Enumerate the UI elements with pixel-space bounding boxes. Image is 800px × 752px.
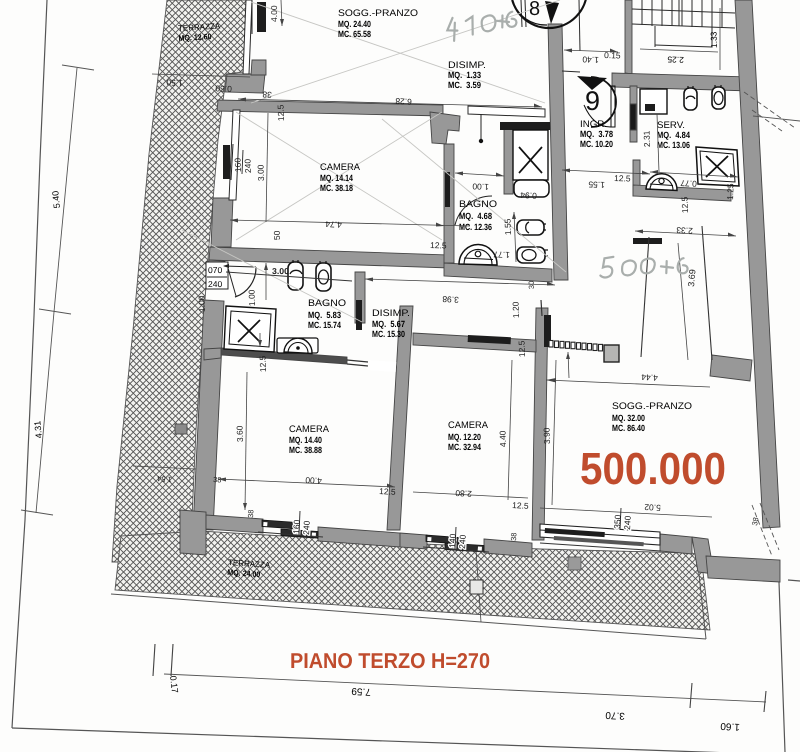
svg-text:0.15: 0.15 bbox=[604, 50, 621, 61]
svg-text:1.55: 1.55 bbox=[588, 179, 605, 190]
svg-text:SOGG.-PRANZO: SOGG.-PRANZO bbox=[612, 401, 692, 412]
svg-text:MC. 38.88: MC. 38.88 bbox=[289, 445, 322, 455]
svg-text:MC. 10.20: MC. 10.20 bbox=[580, 139, 613, 149]
svg-text:MQ. 4.68: MQ. 4.68 bbox=[459, 211, 492, 221]
svg-text:4.00: 4.00 bbox=[305, 475, 322, 486]
svg-text:MC. 86.40: MC. 86.40 bbox=[612, 423, 645, 433]
svg-text:30: 30 bbox=[527, 281, 536, 290]
svg-text:1.20: 1.20 bbox=[510, 301, 521, 318]
svg-text:3.60: 3.60 bbox=[234, 425, 245, 442]
svg-text:1.33: 1.33 bbox=[708, 31, 719, 48]
svg-text:MQ. 14.14: MQ. 14.14 bbox=[320, 173, 353, 183]
svg-text:8: 8 bbox=[529, 0, 540, 20]
svg-text:MQ. 4.84: MQ. 4.84 bbox=[657, 130, 690, 140]
svg-text:500.000: 500.000 bbox=[580, 443, 726, 494]
svg-text:MC. 12.36: MC. 12.36 bbox=[459, 222, 492, 232]
svg-text:DISIMP.: DISIMP. bbox=[372, 308, 410, 319]
svg-text:12.5: 12.5 bbox=[379, 486, 396, 497]
svg-text:MQ. 12.20: MQ. 12.20 bbox=[448, 432, 481, 442]
svg-text:0.94: 0.94 bbox=[520, 190, 537, 201]
svg-text:3.90: 3.90 bbox=[541, 427, 552, 444]
svg-text:3.70: 3.70 bbox=[605, 709, 625, 721]
svg-text:4.00: 4.00 bbox=[269, 5, 279, 22]
svg-text:MQ. 12.60: MQ. 12.60 bbox=[178, 32, 212, 43]
svg-text:12.5: 12.5 bbox=[430, 240, 447, 251]
svg-text:CAMERA: CAMERA bbox=[289, 424, 330, 435]
svg-text:240: 240 bbox=[622, 515, 633, 530]
svg-text:240: 240 bbox=[243, 158, 253, 173]
svg-text:350: 350 bbox=[612, 514, 623, 529]
svg-text:240: 240 bbox=[457, 534, 468, 549]
svg-text:4.44: 4.44 bbox=[641, 372, 658, 383]
svg-text:38: 38 bbox=[213, 475, 222, 484]
svg-text:4.74: 4.74 bbox=[325, 219, 342, 230]
svg-text:2.31: 2.31 bbox=[641, 130, 652, 147]
svg-text:12.5: 12.5 bbox=[275, 104, 286, 121]
svg-text:CAMERA: CAMERA bbox=[448, 420, 489, 431]
svg-text:12.5: 12.5 bbox=[679, 196, 690, 213]
svg-text:0.50: 0.50 bbox=[215, 83, 232, 94]
svg-text:BAGNO: BAGNO bbox=[459, 199, 497, 210]
svg-text:9: 9 bbox=[585, 86, 600, 116]
svg-text:MC. 38.18: MC. 38.18 bbox=[320, 183, 353, 193]
svg-text:2.33: 2.33 bbox=[676, 225, 693, 236]
svg-text:38: 38 bbox=[509, 532, 518, 541]
svg-text:SOGG.-PRANZO: SOGG.-PRANZO bbox=[338, 8, 418, 19]
svg-text:MC. 32.94: MC. 32.94 bbox=[448, 442, 481, 452]
svg-text:1.60: 1.60 bbox=[720, 720, 740, 732]
svg-text:PIANO TERZO H=270: PIANO TERZO H=270 bbox=[290, 649, 490, 673]
svg-text:MQ. 14.40: MQ. 14.40 bbox=[289, 435, 322, 445]
svg-text:2.25: 2.25 bbox=[667, 54, 684, 65]
svg-text:3.00: 3.00 bbox=[255, 164, 266, 181]
svg-text:7.59: 7.59 bbox=[351, 685, 371, 697]
svg-text:4.40: 4.40 bbox=[497, 430, 508, 447]
svg-text:160: 160 bbox=[291, 519, 302, 534]
svg-text:MC. 15.74: MC. 15.74 bbox=[308, 320, 341, 330]
svg-text:MC. 13.06: MC. 13.06 bbox=[657, 140, 690, 150]
svg-text:4.31: 4.31 bbox=[32, 420, 44, 438]
svg-text:50: 50 bbox=[272, 230, 282, 240]
svg-text:5.40: 5.40 bbox=[50, 190, 62, 208]
svg-text:240: 240 bbox=[301, 520, 312, 535]
svg-text:MC. 65.58: MC. 65.58 bbox=[338, 29, 371, 39]
svg-text:12.5: 12.5 bbox=[257, 355, 268, 372]
svg-text:CAMERA: CAMERA bbox=[320, 162, 361, 173]
svg-text:MC. 3.59: MC. 3.59 bbox=[448, 80, 481, 90]
svg-text:2.80: 2.80 bbox=[455, 488, 472, 499]
svg-text:1.55: 1.55 bbox=[502, 218, 513, 235]
svg-text:240: 240 bbox=[208, 279, 222, 289]
svg-text:6.28: 6.28 bbox=[395, 96, 412, 107]
svg-text:MC. 15.30: MC. 15.30 bbox=[372, 329, 405, 339]
svg-text:12.5: 12.5 bbox=[512, 500, 529, 511]
svg-text:38: 38 bbox=[246, 509, 255, 518]
svg-text:MQ. 1.33: MQ. 1.33 bbox=[448, 70, 481, 80]
svg-text:12.5: 12.5 bbox=[516, 340, 527, 357]
svg-text:5.02: 5.02 bbox=[644, 502, 661, 513]
svg-text:1.25: 1.25 bbox=[725, 183, 736, 200]
svg-text:12.5: 12.5 bbox=[614, 173, 631, 184]
svg-text:MQ. 5.83: MQ. 5.83 bbox=[308, 310, 341, 320]
svg-text:1.40: 1.40 bbox=[582, 54, 599, 65]
svg-text:1.00: 1.00 bbox=[472, 181, 489, 192]
svg-text:1.54: 1.54 bbox=[157, 474, 172, 484]
svg-text:MQ. 3.78: MQ. 3.78 bbox=[580, 129, 613, 139]
svg-text:140: 140 bbox=[447, 533, 458, 548]
svg-text:BAGNO: BAGNO bbox=[308, 298, 346, 309]
svg-text:0.77: 0.77 bbox=[680, 178, 697, 189]
svg-text:38: 38 bbox=[750, 517, 760, 527]
svg-text:MQ. 32.00: MQ. 32.00 bbox=[612, 413, 645, 423]
svg-text:1.00: 1.00 bbox=[196, 295, 207, 312]
svg-text:1.77: 1.77 bbox=[493, 249, 510, 260]
svg-text:MQ. 5.67: MQ. 5.67 bbox=[372, 319, 405, 329]
svg-text:160: 160 bbox=[233, 157, 243, 172]
svg-text:MQ. 24.40: MQ. 24.40 bbox=[338, 19, 371, 29]
svg-text:1.00: 1.00 bbox=[246, 289, 257, 306]
svg-text:38: 38 bbox=[262, 89, 272, 99]
svg-text:070: 070 bbox=[208, 265, 222, 275]
svg-text:0.17: 0.17 bbox=[168, 675, 180, 694]
svg-text:3.98: 3.98 bbox=[442, 294, 459, 305]
svg-text:3.00: 3.00 bbox=[272, 266, 289, 276]
svg-text:1.50: 1.50 bbox=[166, 77, 183, 88]
